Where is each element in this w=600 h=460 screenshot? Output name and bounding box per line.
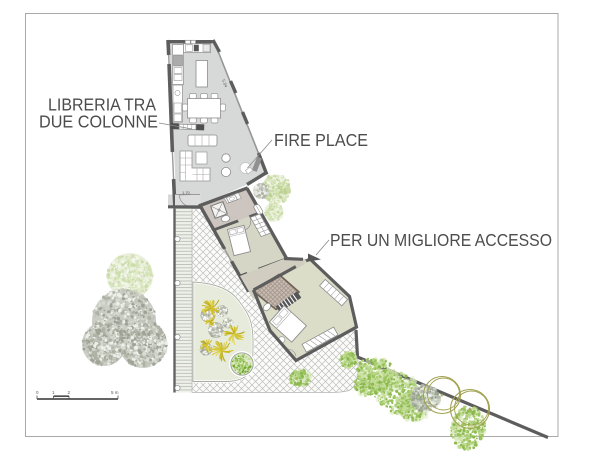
svg-text:1.70: 1.70: [182, 190, 191, 195]
svg-text:PER UN MIGLIORE ACCESSO: PER UN MIGLIORE ACCESSO: [330, 230, 552, 250]
svg-text:FIRE PLACE: FIRE PLACE: [274, 130, 368, 150]
svg-text:DUE COLONNE: DUE COLONNE: [39, 112, 158, 132]
svg-text:5 m: 5 m: [111, 390, 119, 395]
